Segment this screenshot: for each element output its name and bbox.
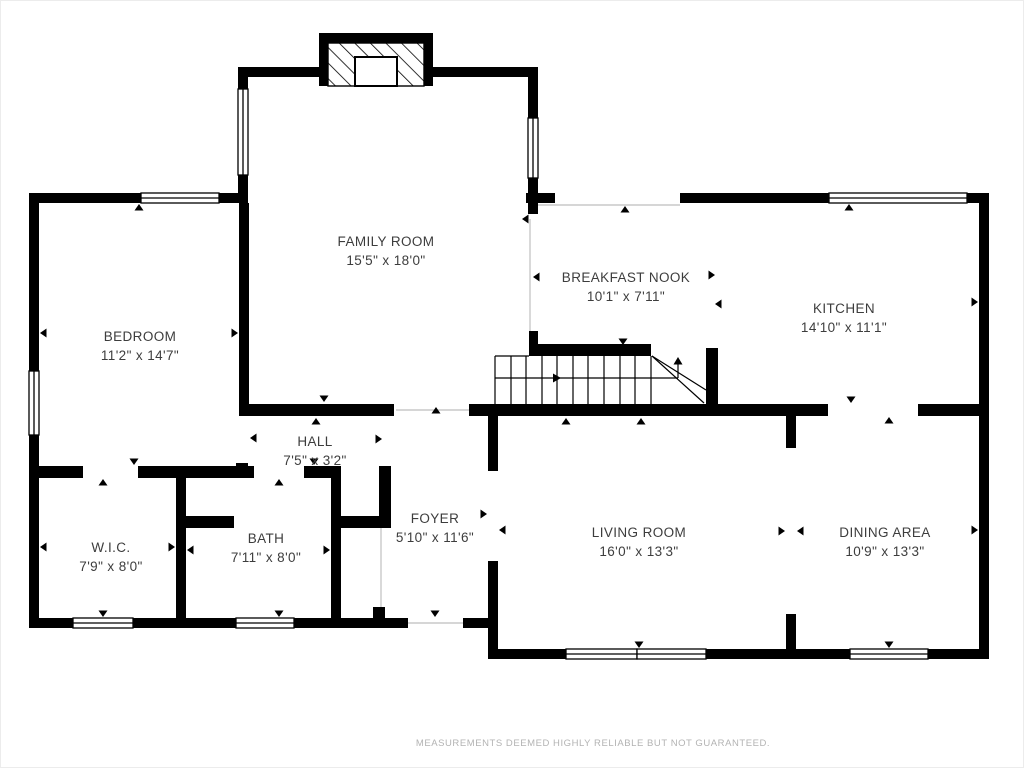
- marker-wic-window-down: [99, 611, 108, 618]
- room-name: BEDROOM: [101, 327, 179, 346]
- window-bedroom-top: [141, 193, 219, 203]
- room-label-wic: W.I.C. 7'9" x 8'0": [79, 538, 142, 576]
- window-dining-bottom: [850, 649, 928, 659]
- room-name: KITCHEN: [801, 299, 887, 318]
- room-label-bath: BATH 7'11" x 8'0": [231, 529, 301, 567]
- marker-stair-entry-up: [637, 418, 646, 425]
- marker-bath-door-up: [275, 479, 284, 486]
- marker-dining-right: [972, 526, 979, 535]
- staircase: [495, 356, 706, 404]
- marker-hall-right: [376, 435, 383, 444]
- room-name: W.I.C.: [79, 538, 142, 557]
- room-label-hall: HALL 7'5" x 3'2": [283, 432, 346, 470]
- window-wic-bottom: [73, 618, 133, 628]
- marker-wic-left: [40, 543, 47, 552]
- window-bedroom-left: [29, 371, 39, 435]
- measurements-disclaimer: MEASUREMENTS DEEMED HIGHLY RELIABLE BUT …: [416, 738, 770, 749]
- marker-family-hall-down: [320, 396, 329, 403]
- room-dims: 16'0" x 13'3": [592, 542, 686, 561]
- room-dims: 15'5" x 18'0": [338, 251, 435, 270]
- window-living-bottom-right: [637, 649, 706, 659]
- marker-dining-window-down: [885, 642, 894, 649]
- marker-living-dining-right: [779, 527, 786, 536]
- floor-plan-page: FAMILY ROOM 15'5" x 18'0" BREAKFAST NOOK…: [0, 0, 1024, 768]
- room-dims: 14'10" x 11'1": [801, 318, 887, 337]
- room-label-living-room: LIVING ROOM 16'0" x 13'3": [592, 523, 686, 561]
- marker-hall-left: [250, 434, 257, 443]
- marker-nook-top-up: [621, 206, 630, 213]
- marker-kitchen-right: [972, 298, 979, 307]
- marker-nook-left: [533, 273, 540, 282]
- marker-nook-kitchen-left: [715, 300, 722, 309]
- room-dims: 7'5" x 3'2": [283, 451, 346, 470]
- marker-family-right-left: [522, 215, 529, 224]
- marker-kitchen-dining-down: [847, 397, 856, 404]
- room-dims: 7'11" x 8'0": [231, 548, 301, 567]
- room-dims: 10'9" x 13'3": [839, 542, 930, 561]
- room-label-bedroom: BEDROOM 11'2" x 14'7": [101, 327, 179, 365]
- window-living-bottom-left: [566, 649, 637, 659]
- marker-bath-left: [187, 546, 194, 555]
- marker-bedroom-right: [232, 329, 239, 338]
- window-kitchen-top: [829, 193, 967, 203]
- marker-family-hall-up: [312, 418, 321, 425]
- marker-living-window-down: [635, 642, 644, 649]
- window-bath-bottom: [236, 618, 294, 628]
- room-label-dining-area: DINING AREA 10'9" x 13'3": [839, 523, 930, 561]
- marker-bath-right: [324, 546, 331, 555]
- room-label-kitchen: KITCHEN 14'10" x 11'1": [801, 299, 887, 337]
- marker-bedroom-window-up: [135, 204, 144, 211]
- marker-kitchen-window-up: [845, 204, 854, 211]
- marker-living-top-up: [562, 418, 571, 425]
- marker-bath-window-down: [275, 611, 284, 618]
- room-dims: 10'1" x 7'11": [562, 287, 690, 306]
- room-name: DINING AREA: [839, 523, 930, 542]
- window-family-right: [528, 118, 538, 178]
- marker-foyer-living-right: [481, 510, 488, 519]
- room-dims: 11'2" x 14'7": [101, 346, 179, 365]
- room-label-breakfast-nook: BREAKFAST NOOK 10'1" x 7'11": [562, 268, 690, 306]
- marker-foyer-living-left: [499, 526, 506, 535]
- room-name: LIVING ROOM: [592, 523, 686, 542]
- room-dims: 7'9" x 8'0": [79, 557, 142, 576]
- room-name: FOYER: [396, 509, 474, 528]
- marker-kitchen-dining-up: [885, 417, 894, 424]
- room-name: BATH: [231, 529, 301, 548]
- room-dims: 5'10" x 11'6": [396, 528, 474, 547]
- stair-direction-arrow: [495, 357, 683, 383]
- marker-nook-right: [709, 271, 716, 280]
- room-name: BREAKFAST NOOK: [562, 268, 690, 287]
- room-name: FAMILY ROOM: [338, 232, 435, 251]
- room-label-family-room: FAMILY ROOM 15'5" x 18'0": [338, 232, 435, 270]
- room-name: HALL: [283, 432, 346, 451]
- marker-wic-right: [169, 543, 176, 552]
- window-family-left: [238, 89, 248, 175]
- firebox: [355, 57, 397, 86]
- room-label-foyer: FOYER 5'10" x 11'6": [396, 509, 474, 547]
- marker-bedroom-left: [40, 329, 47, 338]
- marker-wic-door-down: [130, 459, 139, 466]
- marker-living-dining-left: [797, 527, 804, 536]
- marker-front-door-down: [431, 611, 440, 618]
- marker-wic-door-up: [99, 479, 108, 486]
- floor-plan-drawing: [1, 1, 1024, 768]
- fireplace-chimney: [319, 33, 433, 86]
